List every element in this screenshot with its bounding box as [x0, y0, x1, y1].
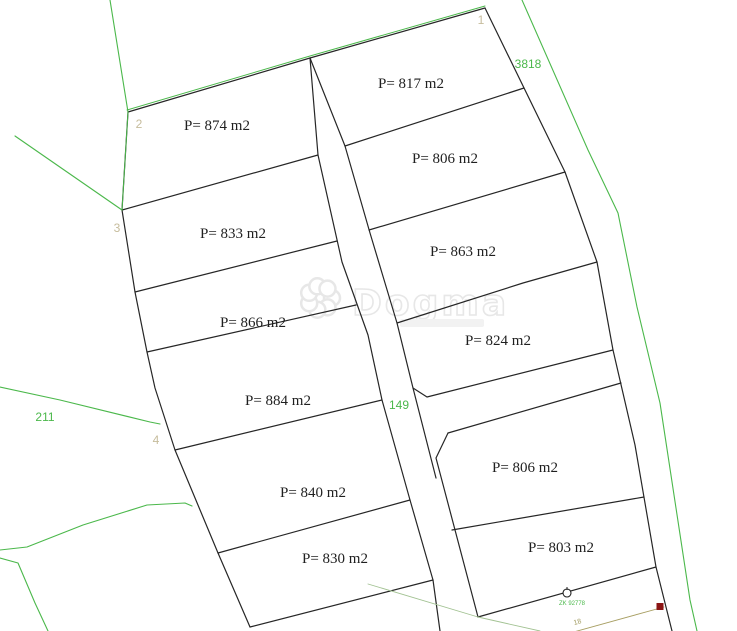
watermark-flower-icon — [319, 281, 335, 297]
ridge-top-edge — [128, 8, 485, 112]
parcel-806-lower-area-label: P= 806 m2 — [492, 460, 558, 476]
bottom-edge-830 — [250, 580, 433, 627]
divider-806-803 — [452, 497, 644, 530]
parcel-803-area-label: P= 803 m2 — [528, 540, 594, 556]
road-left-line — [310, 58, 440, 631]
parcel-830-area-label: P= 830 m2 — [302, 551, 368, 567]
divider-874-833 — [122, 155, 318, 210]
parcel-806-upper-area-label: P= 806 m2 — [412, 151, 478, 167]
dogma-watermark: Dogma — [301, 278, 509, 327]
green-north-line — [110, 0, 128, 112]
right-edge — [485, 8, 672, 631]
watermark-text: Dogma — [352, 283, 509, 324]
pale-bottom-line — [368, 584, 540, 631]
watermark-subtext — [400, 319, 484, 327]
parcel-866-area-label: P= 866 m2 — [220, 315, 286, 331]
parcel-840-area-label: P= 840 m2 — [280, 485, 346, 501]
block2-left-edge — [436, 433, 478, 617]
survey-zk-label: ZK 92778 — [559, 601, 586, 607]
parcel-863-area-label: P= 863 m2 — [430, 244, 496, 260]
block2-top-edge — [448, 383, 621, 433]
divider-840-830 — [218, 500, 410, 553]
point-label-4: 4 — [153, 433, 160, 447]
red-boundary-point — [657, 603, 664, 610]
distance-18: 18 — [573, 618, 582, 627]
green-curve-lower — [0, 558, 48, 631]
parcel-874-area-label: P= 874 m2 — [184, 118, 250, 134]
cadastral-plan: DogmaP= 874 m2P= 817 m2P= 833 m2P= 806 m… — [0, 0, 737, 631]
green-curve-upper — [0, 503, 192, 550]
bottom-edge-824 — [413, 350, 613, 397]
point-label-2: 2 — [136, 117, 143, 131]
parcel-833-area-label: P= 833 m2 — [200, 226, 266, 242]
olive-bottom-line — [552, 607, 664, 631]
cadastral-map: DogmaP= 874 m2P= 817 m2P= 833 m2P= 806 m… — [0, 0, 737, 631]
divider-806-863 — [369, 172, 565, 230]
cadastral-3818: 3818 — [515, 57, 542, 71]
cadastral-211: 211 — [35, 410, 54, 424]
point-label-1: 1 — [478, 13, 485, 27]
cadastral-149: 149 — [389, 398, 409, 412]
green-3818-line — [522, 0, 697, 631]
divider-874-817 — [310, 58, 345, 146]
parcel-884-area-label: P= 884 m2 — [245, 393, 311, 409]
green-211-line — [0, 387, 160, 424]
green-ridge-overlay — [127, 6, 485, 110]
survey-point-marker — [563, 589, 571, 597]
green-left-overlay — [122, 112, 128, 210]
green-west-diagonal — [15, 136, 122, 210]
parcel-824-area-label: P= 824 m2 — [465, 333, 531, 349]
parcel-817-area-label: P= 817 m2 — [378, 76, 444, 92]
divider-817-806 — [345, 88, 524, 146]
point-label-3: 3 — [114, 221, 121, 235]
